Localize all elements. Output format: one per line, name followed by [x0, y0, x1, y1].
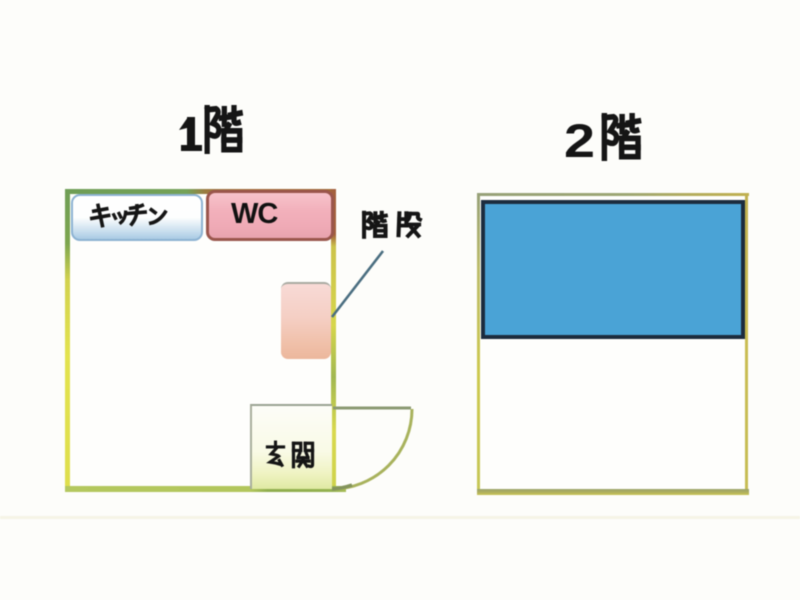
- svg-text:2: 2: [564, 114, 595, 167]
